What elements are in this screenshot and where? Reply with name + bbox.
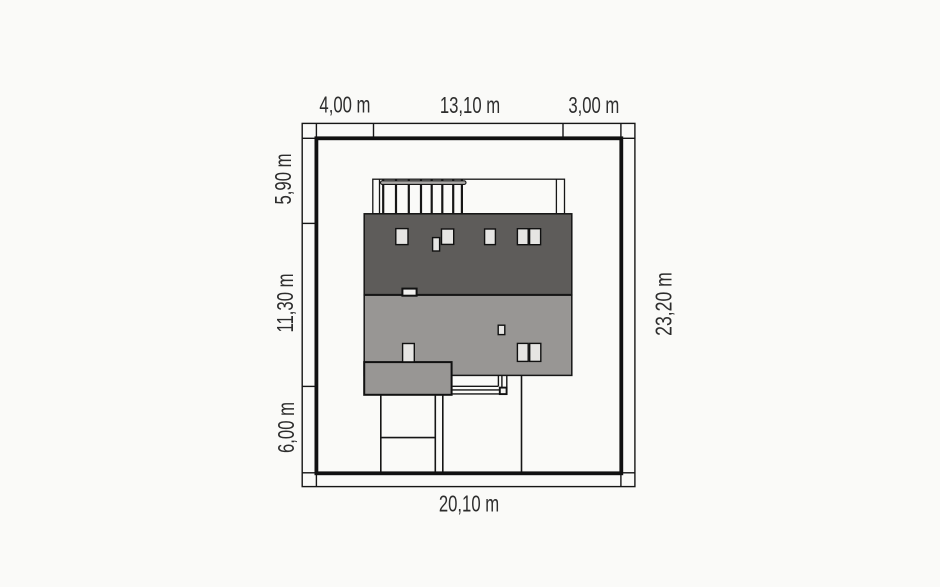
svg-text:5,90 m: 5,90 m <box>271 154 296 205</box>
svg-text:23,20 m: 23,20 m <box>651 272 677 336</box>
svg-text:6,00 m: 6,00 m <box>274 402 299 453</box>
svg-text:4,00 m: 4,00 m <box>319 93 370 118</box>
svg-text:3,00 m: 3,00 m <box>568 93 619 118</box>
svg-text:20,10 m: 20,10 m <box>439 492 499 517</box>
svg-text:13,10 m: 13,10 m <box>440 93 500 118</box>
svg-text:11,30 m: 11,30 m <box>274 274 299 333</box>
